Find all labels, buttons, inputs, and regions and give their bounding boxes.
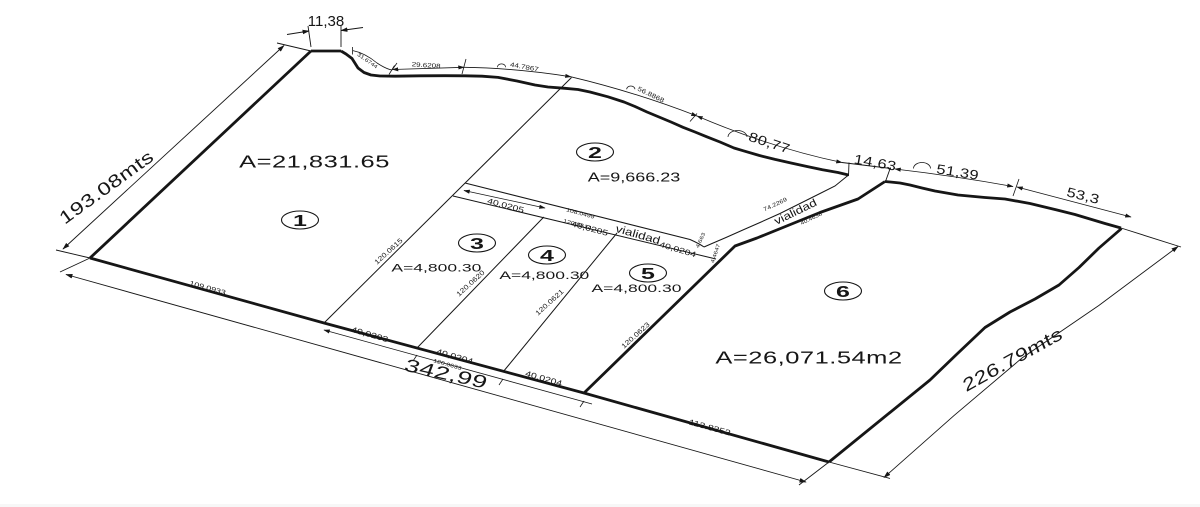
- svg-text:3: 3: [470, 236, 484, 253]
- svg-text:A=9,666.23: A=9,666.23: [588, 171, 680, 185]
- svg-text:4: 4: [540, 248, 554, 265]
- svg-text:2: 2: [588, 145, 602, 162]
- svg-text:40,0204: 40,0204: [524, 369, 563, 388]
- svg-text:40,0204: 40,0204: [658, 240, 697, 259]
- svg-text:14,63: 14,63: [853, 152, 898, 174]
- svg-text:193.08mts: 193.08mts: [56, 146, 158, 228]
- svg-text:342,99: 342,99: [402, 355, 491, 393]
- svg-text:44.7867: 44.7867: [509, 60, 539, 73]
- svg-text:120.0623: 120.0623: [620, 321, 652, 351]
- svg-text:56.8868: 56.8868: [636, 85, 665, 105]
- svg-text:A=26,071.54m2: A=26,071.54m2: [715, 347, 902, 367]
- svg-text:40,0205: 40,0205: [570, 220, 609, 238]
- svg-text:A=4,800.30: A=4,800.30: [592, 283, 682, 295]
- svg-text:108.0499: 108.0499: [565, 207, 595, 220]
- svg-text:109.0933: 109.0933: [188, 279, 227, 296]
- svg-text:11,38: 11,38: [308, 13, 344, 30]
- svg-text:40,0203: 40,0203: [350, 325, 389, 344]
- svg-text:A=4,800.30: A=4,800.30: [499, 270, 589, 282]
- svg-text:A=21,831.65: A=21,831.65: [239, 151, 390, 171]
- svg-text:5: 5: [641, 266, 655, 283]
- svg-text:51,39: 51,39: [935, 162, 980, 184]
- svg-text:1: 1: [293, 213, 307, 230]
- svg-text:A=4,800.30: A=4,800.30: [391, 262, 481, 274]
- svg-text:113.8352: 113.8352: [688, 418, 732, 438]
- svg-text:6: 6: [836, 284, 850, 301]
